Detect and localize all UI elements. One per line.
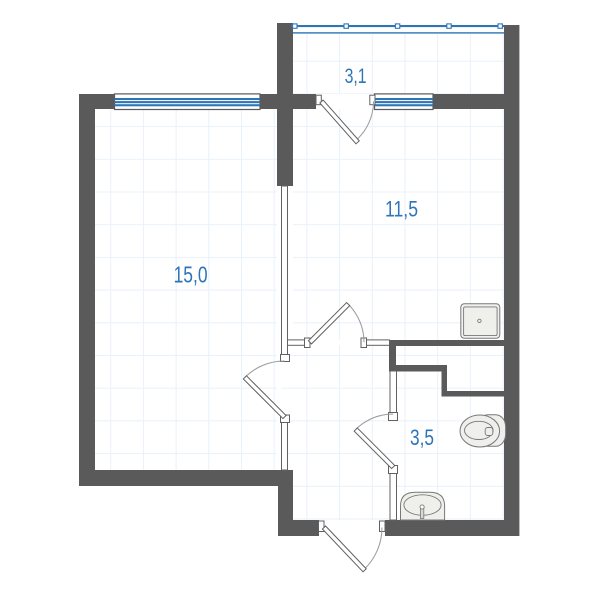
svg-text:3,1: 3,1 [345,65,367,88]
svg-text:15,0: 15,0 [174,262,208,288]
svg-text:3,5: 3,5 [410,425,434,450]
svg-text:11,5: 11,5 [385,197,418,222]
